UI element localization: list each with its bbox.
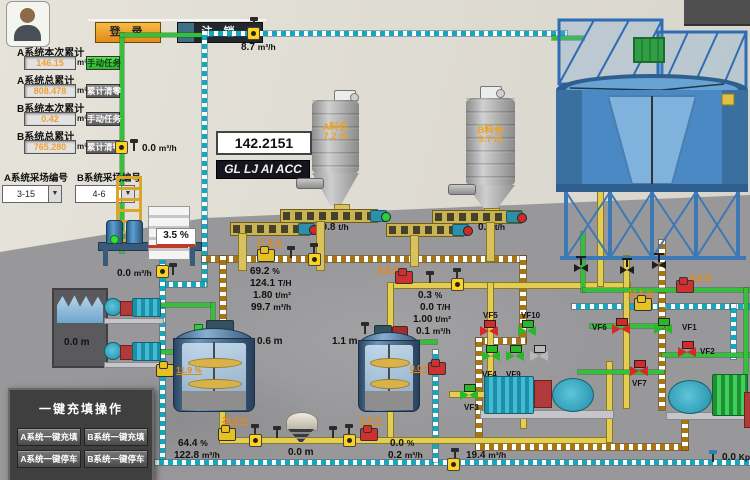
hopper-dome [286,412,318,431]
agitator-tank-2[interactable] [358,340,420,412]
vertical-pump-2[interactable] [126,220,143,244]
valve-vf4[interactable] [480,345,502,361]
density-meter-icon [272,426,282,438]
row-b-current-value[interactable]: 0.42 [24,112,76,126]
valve-label-vf1: VF1 [682,323,697,332]
pipe-fill-jog [476,338,526,344]
valve-vf1[interactable] [652,318,674,334]
pool-line-pct: 11.9 % [176,365,202,375]
fill-pump-1-coupling [534,380,552,408]
conveyor-b1-motor [506,211,523,223]
silo-b-feeder [448,184,476,195]
conveyor-post [410,235,419,267]
density-meter-icon [286,246,296,258]
agitator2-level: 1.1 m [332,336,358,347]
mining-area-a-select[interactable]: 3-15 [2,185,50,203]
pump-base [104,318,164,324]
b-system-fill-button[interactable]: B系统一键充填 [84,428,148,446]
manual-task-b-button[interactable]: 手动任务 [86,112,120,126]
pipe-slurry-bottom [220,438,612,443]
pool-pump-2-motor [132,342,161,361]
marquee-display: GL LJ AI ACC [216,160,310,179]
station-a-density: 1.80 t/m³ [253,290,291,301]
a-system-stop-button[interactable]: A系统一键停车 [17,450,81,468]
valve-label-vf7: VF7 [632,379,647,388]
pool-level-label: 0.0 m [64,337,90,348]
user-avatar [6,1,50,47]
valve-label-vf6: VF6 [592,323,607,332]
b-system-stop-button[interactable]: B系统一键停车 [84,450,148,468]
thickener-tank [550,6,750,268]
flow-meter-icon [249,434,262,447]
flow-sensor-icon [129,139,139,151]
pressure-label: 0.0 Kpa [722,452,750,463]
bottom-right-pump[interactable] [360,428,378,441]
valve-label-vf5: VF5 [483,311,498,320]
flow-sensor-icon [168,263,178,275]
pipe-clear-right-1 [583,288,750,292]
feed-pump-a[interactable] [257,249,275,262]
row-a-total-value[interactable]: 808.478 [24,84,76,98]
right-mid-pump[interactable] [634,298,652,311]
flow-bottom-label: 19.4 m³/h [466,450,506,461]
run-indicator [110,235,119,244]
tank-concentration-box: 3.5 % [156,228,196,247]
valve-label-vf3: VF3 [464,403,479,412]
fill-pump-2-motor [712,374,748,416]
flow-meter-icon [308,253,321,266]
flow-meter-icon [115,141,128,154]
valve-vf2[interactable] [676,341,698,357]
valve-vf3[interactable] [458,384,480,400]
valve-spare[interactable] [528,345,550,361]
valve-vf10[interactable] [516,320,538,336]
fill-pump-1[interactable] [552,378,594,412]
pump-base [104,362,164,368]
silo-a-feeder [296,178,324,189]
silo-a-level: 7.2 m [312,131,359,142]
totalizer-display: 142.2151 [216,131,312,155]
flow-platform-label: 0.0 m³/h [117,268,152,279]
pipe-return-right-vert [731,304,736,359]
station-a-flow: 99.7 m³/h [251,302,291,313]
out-a-pct-label: 64.4 % [178,438,208,449]
mining-area-a-select-arrow[interactable]: ▼ [48,185,62,203]
valve-vf9[interactable] [504,345,526,361]
pipe-clear-right-vert [744,288,748,374]
pipe-return-vert [202,31,207,286]
water-pool [52,288,108,368]
valve-label-vf10: VF10 [521,311,540,320]
manual-valve-icon [620,266,634,275]
standby-pump [744,392,750,428]
bottom-left-pct: 26.8 % [222,415,248,425]
station-b-pct: 0.3 % [418,290,442,301]
valve-label-vf2: VF2 [700,347,715,356]
pipe-slurry-pump-riser [607,362,612,442]
platform-leg [190,250,195,266]
flow-left-label: 0.0 m³/h [142,143,177,154]
selector-a-label: A系统采场编号 [4,170,68,184]
silo-b-level: 9.7 m [466,134,515,145]
hopper-level: 0.0 m [288,447,314,458]
row-b-total-value[interactable]: 765.280 [24,140,76,154]
pipe-clear-water-top [120,33,208,37]
station-b-density: 1.00 t/m³ [413,314,451,325]
conveyor-a1[interactable] [280,209,378,223]
conveyor-a1-motor [370,210,387,222]
fill-pump-2[interactable] [668,380,712,414]
conveyor-b2-motor [452,224,469,236]
pressure-sensor-icon [708,450,718,462]
conveyor-a2-motor [298,223,315,235]
flow-meter-icon [343,434,356,447]
manual-task-a-button[interactable]: 手动任务 [86,56,120,70]
reset-total-a-button[interactable]: 累计清零 [86,84,120,98]
bottom-left-pump[interactable] [218,428,236,441]
pool-line-pump[interactable] [156,364,174,377]
manual-valve-icon [574,264,588,273]
station-a-rate: 124.1 T/H [250,278,292,289]
valve-vf5[interactable] [478,320,500,336]
valve-vf7[interactable] [628,360,650,376]
one-key-panel-title: 一键充填操作 [10,400,152,417]
density-meter-icon [425,271,435,283]
manual-valve-icon [652,261,666,270]
fill-pump-1-motor [484,376,534,414]
platform-leg [103,250,108,266]
station-b-rate: 0.0 T/H [420,302,450,313]
out-a-flow-label: 122.8 m³/h [174,450,220,461]
row-a-current-value[interactable]: 146.15 [24,56,76,70]
bottom-right-pct: 0.0 % [360,415,382,425]
pipe-fill-bottom [476,444,688,450]
hmi-screen: 登 录 注 销 A系统本次累计 146.15 m³ 手动任务 A系统总累计 80… [0,0,750,480]
flow-meter-icon [247,27,260,40]
agitator-tank-1[interactable] [173,338,255,412]
agitator2-sensor [360,322,370,334]
density-meter-icon [328,426,338,438]
header-divider [88,19,266,21]
flow-meter-icon [447,458,460,471]
conveyor-post [486,222,495,262]
pipe-return-jog [160,282,206,287]
pipe-fill-main [202,256,526,262]
pool-pump-1-motor [132,298,161,317]
right-top-pump[interactable] [676,280,694,293]
agitator1-level: 0.6 m [257,336,283,347]
station-b-inlet-pump[interactable] [395,271,413,284]
station-a-pct: 69.2 % [250,266,280,277]
conveyor-post [238,233,247,271]
pipe-clear-right-4 [578,370,664,374]
pool-water [57,293,103,323]
one-key-panel: 一键充填操作 A系统一键充填 B系统一键充填 A系统一键停车 B系统一键停车 [8,388,154,480]
a-system-fill-button[interactable]: A系统一键充填 [17,428,81,446]
flow-meter-icon [451,278,464,291]
agitator2-out-pump[interactable] [428,362,446,375]
station-b-flow: 0.1 m³/h [416,326,451,337]
valve-vf6[interactable] [610,318,632,334]
out-b-pct-label: 0.0 % [390,438,414,449]
out-b-flow-label: 0.2 m³/h [388,450,423,461]
flow-top-label: 8.7 m³/h [241,42,276,53]
